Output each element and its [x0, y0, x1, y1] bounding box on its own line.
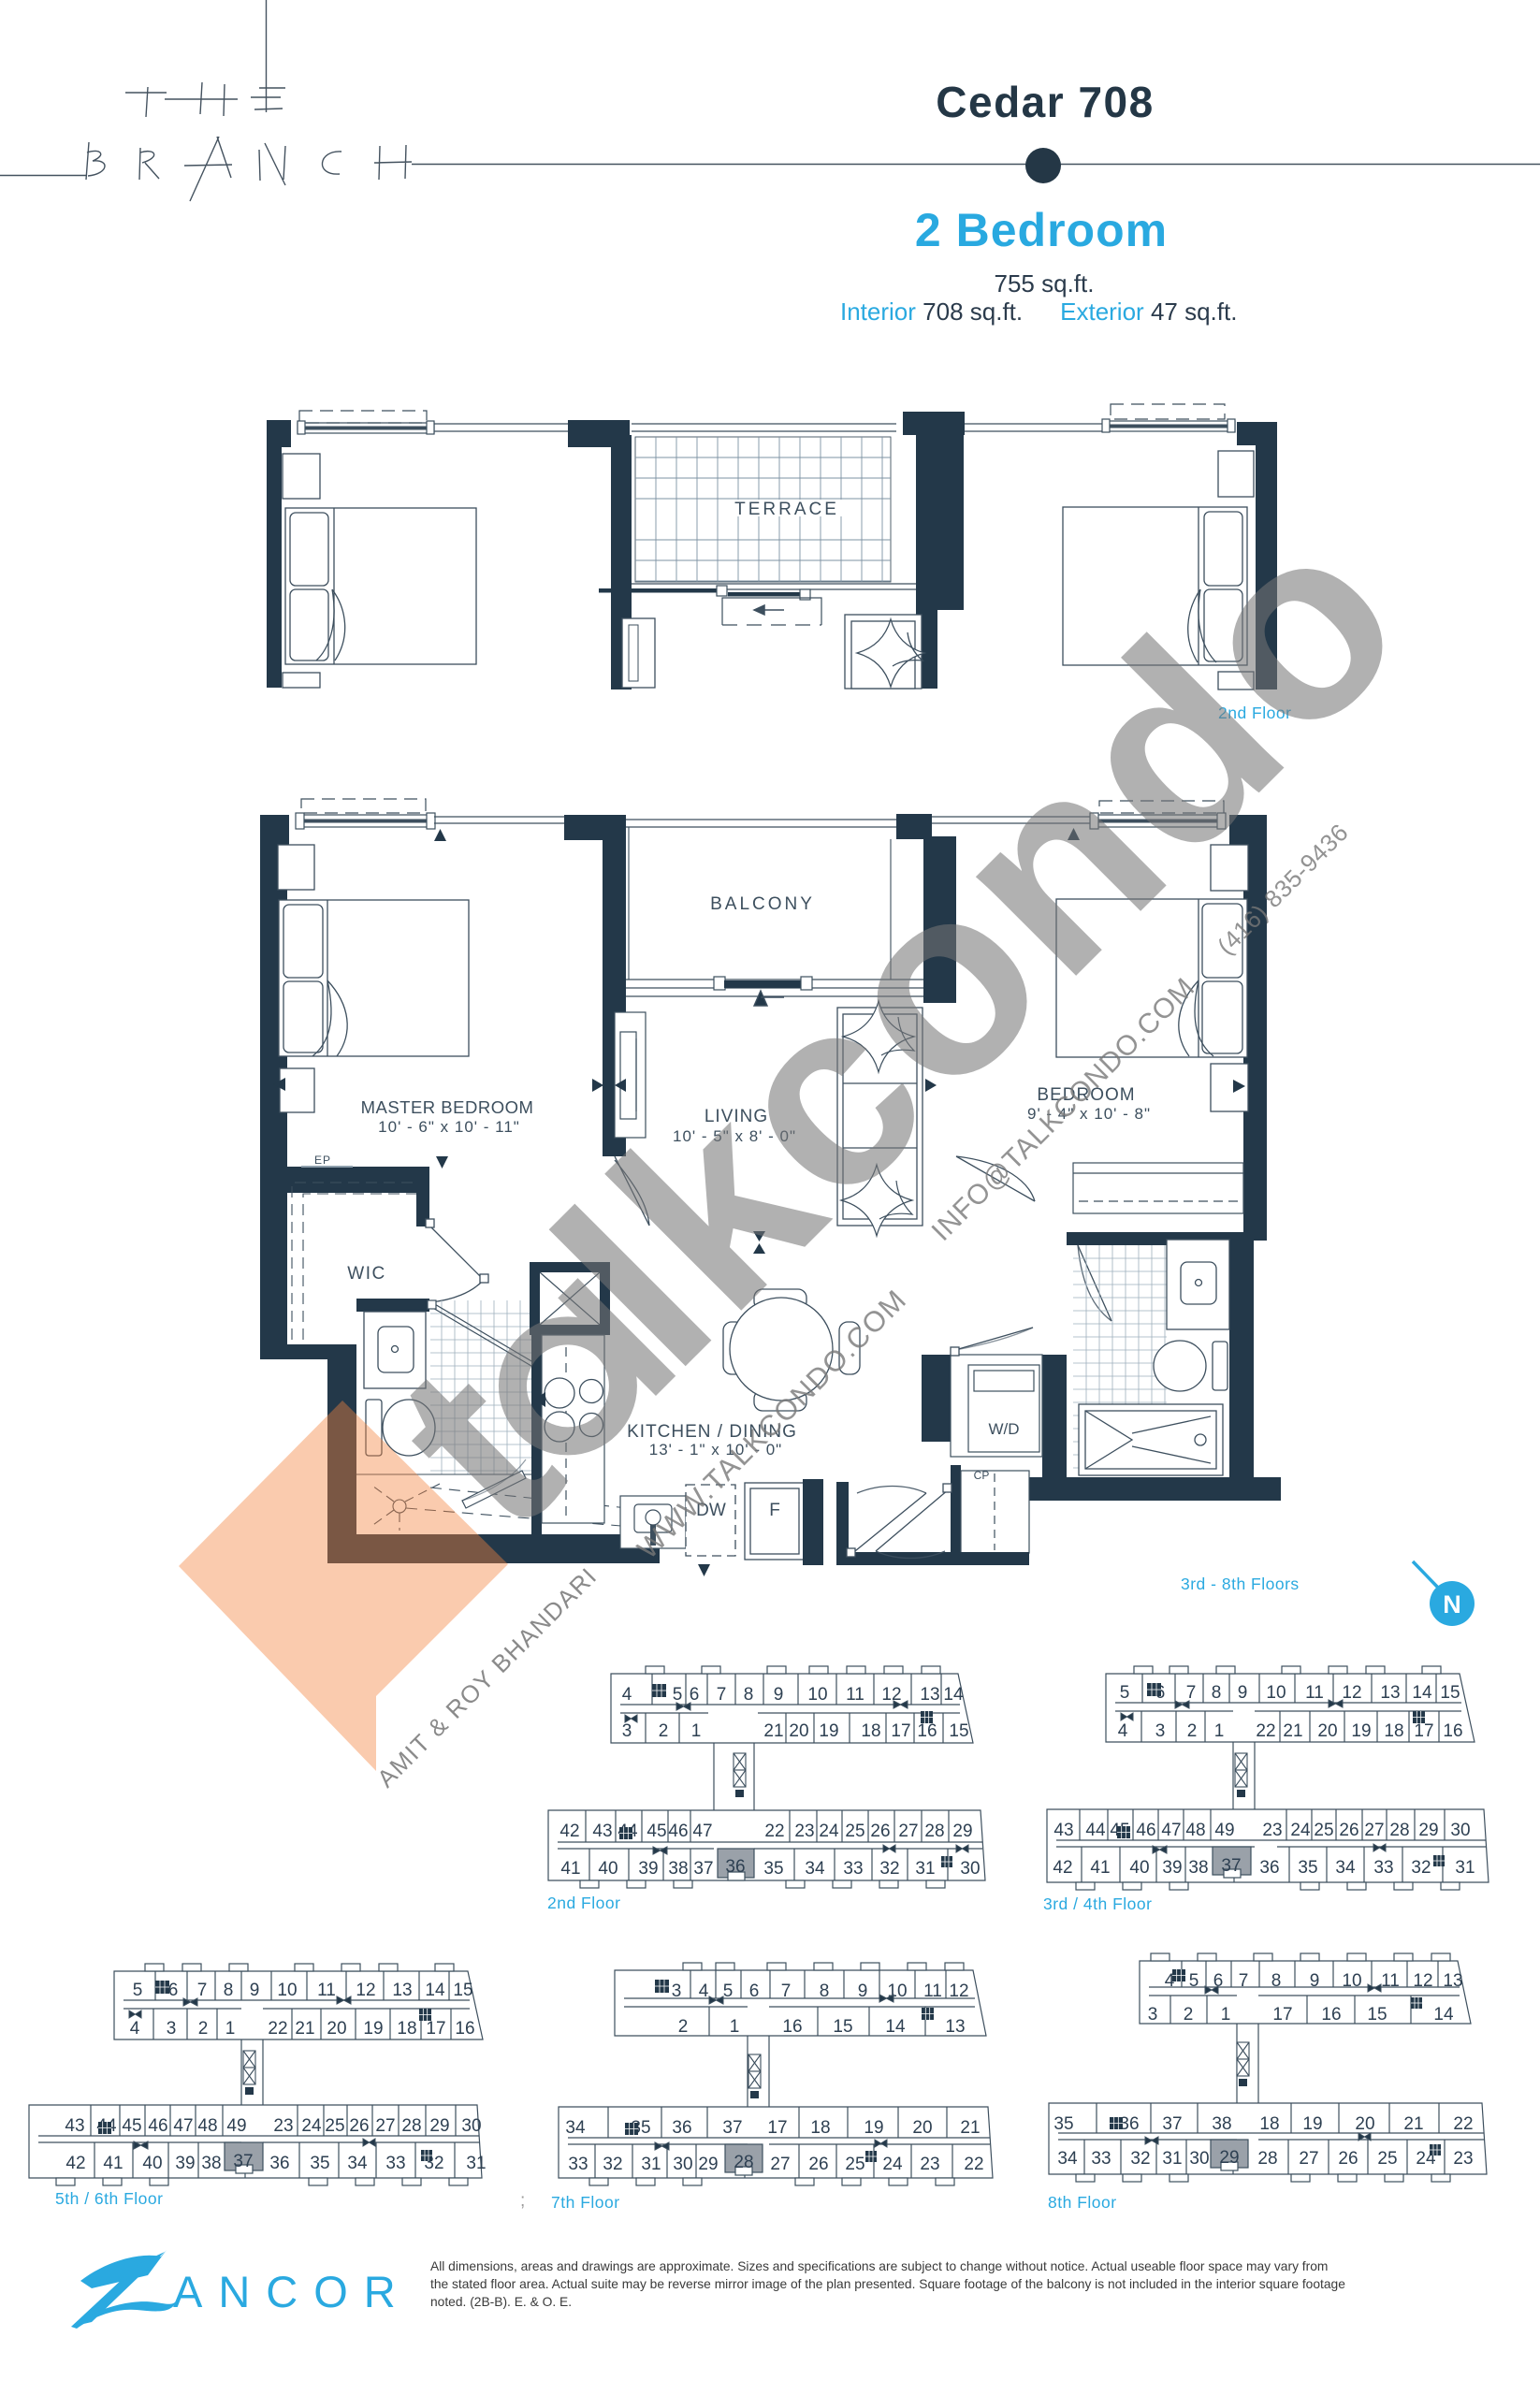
svg-text:10: 10 — [1266, 1683, 1286, 1703]
svg-text:10: 10 — [1342, 1971, 1361, 1991]
svg-text:6: 6 — [749, 1981, 760, 2001]
svg-text:31: 31 — [1162, 2149, 1182, 2169]
svg-text:19: 19 — [1351, 1721, 1371, 1741]
svg-text:17: 17 — [767, 2118, 787, 2138]
svg-text:1: 1 — [225, 2019, 236, 2039]
svg-text:7: 7 — [781, 1981, 792, 2001]
svg-text:30: 30 — [960, 1859, 980, 1879]
svg-text:25: 25 — [325, 2116, 344, 2136]
svg-text:14: 14 — [943, 1685, 964, 1705]
svg-text:MASTER BEDROOM: MASTER BEDROOM — [361, 1097, 534, 1117]
svg-text:the stated floor area. Actual: the stated floor area. Actual suite may … — [430, 2277, 1345, 2291]
svg-text:13: 13 — [1380, 1683, 1400, 1703]
svg-text:35: 35 — [763, 1859, 783, 1879]
svg-text:16: 16 — [455, 2019, 474, 2039]
svg-text:1: 1 — [1221, 2005, 1231, 2025]
svg-text:18: 18 — [810, 2118, 830, 2138]
svg-text:9: 9 — [1310, 1971, 1320, 1991]
svg-text:CP: CP — [974, 1469, 990, 1482]
svg-text:24: 24 — [301, 2116, 322, 2136]
svg-text:26: 26 — [1339, 1821, 1358, 1840]
svg-text:30: 30 — [1450, 1821, 1470, 1840]
svg-text:25: 25 — [845, 1822, 864, 1841]
svg-text:3: 3 — [1155, 1721, 1166, 1741]
svg-text:11: 11 — [1381, 1971, 1400, 1991]
svg-text:21: 21 — [763, 1721, 783, 1741]
svg-text:13: 13 — [920, 1685, 939, 1705]
svg-text:33: 33 — [843, 1859, 863, 1879]
svg-text:28: 28 — [734, 2153, 753, 2172]
svg-text:8: 8 — [1271, 1971, 1282, 1991]
svg-text:18: 18 — [861, 1721, 880, 1741]
svg-text:24: 24 — [819, 1822, 839, 1841]
svg-text:11: 11 — [846, 1685, 864, 1705]
svg-text:19: 19 — [864, 2118, 883, 2138]
svg-text:18: 18 — [1259, 2114, 1279, 2134]
svg-text:40: 40 — [598, 1859, 617, 1879]
svg-text:23: 23 — [794, 1822, 814, 1841]
svg-text:41: 41 — [1090, 1858, 1110, 1878]
svg-text:34: 34 — [347, 2154, 368, 2173]
svg-text:3: 3 — [167, 2019, 177, 2039]
svg-text:40: 40 — [1129, 1858, 1149, 1878]
svg-text:12: 12 — [1342, 1683, 1361, 1703]
svg-text:;: ; — [520, 2191, 525, 2211]
svg-text:7: 7 — [1239, 1971, 1249, 1991]
svg-text:29: 29 — [429, 2116, 449, 2136]
svg-text:41: 41 — [560, 1859, 580, 1879]
svg-text:16: 16 — [1443, 1721, 1462, 1741]
svg-text:3: 3 — [672, 1981, 682, 2001]
svg-text:42: 42 — [559, 1822, 579, 1841]
svg-text:40: 40 — [142, 2154, 162, 2173]
svg-text:22: 22 — [1453, 2114, 1473, 2134]
svg-text:30: 30 — [461, 2116, 481, 2136]
svg-text:39: 39 — [638, 1859, 658, 1879]
svg-text:8: 8 — [224, 1981, 234, 2000]
svg-text:7th Floor: 7th Floor — [551, 2193, 620, 2212]
svg-text:33: 33 — [1373, 1858, 1393, 1878]
svg-text:4: 4 — [622, 1685, 632, 1705]
svg-text:33: 33 — [1091, 2149, 1111, 2169]
svg-text:27: 27 — [898, 1822, 918, 1841]
svg-text:10' - 6" x 10' - 11": 10' - 6" x 10' - 11" — [378, 1118, 520, 1136]
svg-text:2: 2 — [1184, 2005, 1194, 2025]
svg-text:3: 3 — [1148, 2005, 1158, 2025]
svg-text:noted. (2B-B). E. & O. E.: noted. (2B-B). E. & O. E. — [430, 2295, 572, 2309]
svg-text:47: 47 — [173, 2116, 193, 2136]
svg-text:33: 33 — [568, 2155, 588, 2174]
svg-text:8: 8 — [744, 1685, 754, 1705]
svg-text:1: 1 — [730, 2017, 740, 2037]
svg-text:27: 27 — [770, 2155, 790, 2174]
svg-text:12: 12 — [881, 1685, 901, 1705]
svg-text:2nd Floor: 2nd Floor — [547, 1894, 620, 1912]
svg-text:BALCONY: BALCONY — [710, 894, 815, 914]
svg-text:13: 13 — [1443, 1971, 1462, 1991]
svg-text:24: 24 — [1290, 1821, 1311, 1840]
svg-text:26: 26 — [349, 2116, 369, 2136]
svg-text:N: N — [1443, 1590, 1461, 1618]
svg-text:W/D: W/D — [988, 1420, 1019, 1438]
svg-text:23: 23 — [1262, 1821, 1282, 1840]
svg-text:32: 32 — [1411, 1858, 1431, 1878]
svg-text:26: 26 — [808, 2155, 828, 2174]
svg-text:5th / 6th Floor: 5th / 6th Floor — [55, 2189, 163, 2208]
svg-text:43: 43 — [65, 2116, 84, 2136]
svg-text:3rd / 4th Floor: 3rd / 4th Floor — [1043, 1894, 1152, 1913]
svg-text:WIC: WIC — [347, 1264, 385, 1284]
svg-text:17: 17 — [1272, 2005, 1292, 2025]
svg-text:26: 26 — [1338, 2149, 1358, 2169]
svg-text:23: 23 — [273, 2116, 293, 2136]
svg-text:36: 36 — [1259, 1858, 1279, 1878]
svg-text:21: 21 — [1403, 2114, 1423, 2134]
svg-text:18: 18 — [1384, 1721, 1403, 1741]
svg-text:20: 20 — [1355, 2114, 1374, 2134]
svg-text:23: 23 — [920, 2155, 939, 2174]
svg-text:5: 5 — [1120, 1683, 1130, 1703]
svg-text:5: 5 — [1189, 1971, 1199, 1991]
svg-text:38: 38 — [1188, 1858, 1208, 1878]
svg-text:19: 19 — [819, 1721, 838, 1741]
svg-text:20: 20 — [789, 1721, 808, 1741]
svg-text:lkcondo: lkcondo — [502, 463, 1459, 1419]
svg-text:15: 15 — [833, 2017, 852, 2037]
svg-text:45: 45 — [647, 1822, 666, 1841]
svg-text:17: 17 — [426, 2019, 445, 2039]
svg-text:14: 14 — [425, 1981, 445, 2000]
svg-text:37: 37 — [693, 1859, 713, 1879]
svg-text:7: 7 — [1186, 1683, 1197, 1703]
svg-text:20: 20 — [1317, 1721, 1337, 1741]
svg-text:37: 37 — [233, 2152, 253, 2171]
svg-text:13: 13 — [392, 1981, 412, 2000]
svg-text:27: 27 — [1364, 1821, 1384, 1840]
svg-text:5: 5 — [133, 1981, 143, 2000]
svg-text:36: 36 — [672, 2118, 691, 2138]
svg-text:39: 39 — [1162, 1858, 1182, 1878]
svg-text:38: 38 — [668, 1859, 688, 1879]
svg-text:29: 29 — [952, 1822, 972, 1841]
svg-text:EP: EP — [314, 1154, 331, 1167]
svg-text:31: 31 — [641, 2155, 661, 2174]
svg-text:F: F — [769, 1501, 780, 1520]
svg-text:14: 14 — [885, 2017, 906, 2037]
svg-text:5: 5 — [673, 1685, 683, 1705]
svg-text:8: 8 — [1212, 1683, 1222, 1703]
svg-text:2 Bedroom: 2 Bedroom — [915, 204, 1168, 256]
svg-text:27: 27 — [375, 2116, 395, 2136]
svg-text:34: 34 — [1057, 2149, 1078, 2169]
svg-text:28: 28 — [924, 1822, 944, 1841]
svg-text:37: 37 — [722, 2118, 742, 2138]
svg-text:22: 22 — [764, 1822, 784, 1841]
svg-text:38: 38 — [201, 2154, 221, 2173]
svg-text:28: 28 — [401, 2116, 421, 2136]
svg-text:20: 20 — [327, 2019, 346, 2039]
svg-text:15: 15 — [949, 1721, 968, 1741]
svg-text:28: 28 — [1389, 1821, 1409, 1840]
svg-text:11: 11 — [1305, 1683, 1324, 1703]
svg-text:15: 15 — [453, 1981, 472, 2000]
svg-text:48: 48 — [197, 2116, 217, 2136]
svg-text:ANCOR: ANCOR — [173, 2267, 412, 2316]
svg-text:46: 46 — [148, 2116, 167, 2136]
svg-text:9: 9 — [774, 1685, 784, 1705]
svg-text:36: 36 — [725, 1857, 745, 1877]
svg-text:755 sq.ft.: 755 sq.ft. — [995, 269, 1095, 298]
svg-text:48: 48 — [1185, 1821, 1205, 1840]
svg-text:46: 46 — [668, 1822, 688, 1841]
svg-text:32: 32 — [1130, 2149, 1150, 2169]
svg-text:9: 9 — [858, 1981, 868, 2001]
svg-text:4: 4 — [1118, 1721, 1128, 1741]
svg-text:35: 35 — [1298, 1858, 1317, 1878]
svg-text:2: 2 — [678, 2017, 689, 2037]
svg-text:11: 11 — [923, 1981, 942, 2001]
svg-text:41: 41 — [103, 2154, 123, 2173]
svg-text:1: 1 — [691, 1721, 702, 1741]
svg-text:10: 10 — [807, 1685, 827, 1705]
svg-text:2: 2 — [1187, 1721, 1198, 1741]
svg-text:28: 28 — [1257, 2149, 1277, 2169]
svg-text:7: 7 — [717, 1685, 727, 1705]
svg-text:19: 19 — [1302, 2114, 1322, 2134]
svg-text:27: 27 — [1299, 2149, 1318, 2169]
svg-text:16: 16 — [1321, 2005, 1341, 2025]
svg-text:31: 31 — [1455, 1858, 1475, 1878]
svg-text:21: 21 — [295, 2019, 314, 2039]
svg-text:47: 47 — [692, 1822, 712, 1841]
svg-text:12: 12 — [949, 1981, 968, 2001]
svg-text:30: 30 — [1189, 2149, 1209, 2169]
svg-text:34: 34 — [805, 1859, 825, 1879]
svg-text:6: 6 — [690, 1685, 700, 1705]
svg-text:21: 21 — [1283, 1721, 1302, 1741]
svg-text:22: 22 — [268, 2019, 287, 2039]
svg-text:25: 25 — [845, 2155, 864, 2174]
svg-text:35: 35 — [1053, 2114, 1073, 2134]
svg-text:17: 17 — [891, 1721, 910, 1741]
svg-text:34: 34 — [565, 2118, 586, 2138]
svg-text:9: 9 — [1238, 1683, 1248, 1703]
svg-text:37: 37 — [1221, 1856, 1241, 1876]
svg-text:17: 17 — [1414, 1721, 1433, 1741]
svg-text:49: 49 — [226, 2116, 246, 2136]
svg-text:5: 5 — [723, 1981, 734, 2001]
svg-text:30: 30 — [673, 2155, 692, 2174]
svg-text:37: 37 — [1162, 2114, 1182, 2134]
svg-text:Cedar 708: Cedar 708 — [936, 78, 1154, 126]
svg-text:13: 13 — [945, 2017, 965, 2037]
svg-text:36: 36 — [269, 2154, 289, 2173]
svg-text:47: 47 — [1161, 1821, 1181, 1840]
svg-text:20: 20 — [912, 2118, 932, 2138]
svg-text:49: 49 — [1214, 1821, 1234, 1840]
svg-text:1: 1 — [1214, 1721, 1225, 1741]
svg-text:21: 21 — [960, 2118, 980, 2138]
svg-text:43: 43 — [592, 1822, 612, 1841]
svg-text:12: 12 — [1413, 1971, 1432, 1991]
svg-text:9: 9 — [250, 1981, 260, 2000]
svg-text:Interior 708 sq.ft.Exterior 47: Interior 708 sq.ft.Exterior 47 sq.ft. — [840, 298, 1237, 326]
svg-text:24: 24 — [882, 2155, 903, 2174]
svg-text:3rd - 8th Floors: 3rd - 8th Floors — [1181, 1575, 1300, 1593]
svg-text:45: 45 — [122, 2116, 141, 2136]
svg-text:34: 34 — [1335, 1858, 1356, 1878]
svg-text:32: 32 — [603, 2155, 622, 2174]
svg-text:4: 4 — [130, 2019, 140, 2039]
svg-text:4: 4 — [699, 1981, 709, 2001]
svg-text:25: 25 — [1314, 1821, 1333, 1840]
svg-text:19: 19 — [363, 2019, 383, 2039]
svg-text:29: 29 — [698, 2155, 718, 2174]
svg-text:11: 11 — [317, 1981, 336, 2000]
svg-text:14: 14 — [1412, 1683, 1432, 1703]
svg-text:43: 43 — [1053, 1821, 1073, 1840]
svg-text:29: 29 — [1219, 2148, 1239, 2168]
svg-text:42: 42 — [1053, 1858, 1072, 1878]
svg-text:23: 23 — [1453, 2149, 1473, 2169]
svg-text:TERRACE: TERRACE — [734, 500, 839, 519]
svg-text:32: 32 — [879, 1859, 899, 1879]
svg-text:3: 3 — [622, 1721, 632, 1741]
svg-text:2: 2 — [659, 1721, 669, 1741]
svg-text:39: 39 — [175, 2154, 195, 2173]
svg-text:46: 46 — [1136, 1821, 1155, 1840]
svg-text:42: 42 — [65, 2154, 85, 2173]
svg-text:26: 26 — [870, 1822, 890, 1841]
svg-text:35: 35 — [310, 2154, 329, 2173]
svg-text:15: 15 — [1440, 1683, 1460, 1703]
svg-text:25: 25 — [1377, 2149, 1397, 2169]
svg-text:2: 2 — [198, 2019, 209, 2039]
svg-text:14: 14 — [1433, 2005, 1454, 2025]
svg-text:44: 44 — [1085, 1821, 1106, 1840]
svg-text:8: 8 — [820, 1981, 830, 2001]
svg-text:22: 22 — [964, 2155, 983, 2174]
svg-text:15: 15 — [1367, 2005, 1387, 2025]
svg-text:6: 6 — [168, 1981, 179, 2000]
svg-text:16: 16 — [917, 1721, 937, 1741]
svg-text:7: 7 — [197, 1981, 208, 2000]
svg-text:8th Floor: 8th Floor — [1048, 2193, 1117, 2212]
svg-text:18: 18 — [397, 2019, 416, 2039]
svg-text:16: 16 — [782, 2017, 802, 2037]
svg-text:33: 33 — [385, 2154, 405, 2173]
svg-text:10: 10 — [277, 1981, 297, 2000]
svg-text:31: 31 — [915, 1859, 935, 1879]
svg-text:All dimensions, areas and draw: All dimensions, areas and drawings are a… — [430, 2259, 1328, 2273]
svg-text:31: 31 — [466, 2154, 486, 2173]
svg-text:29: 29 — [1418, 1821, 1438, 1840]
svg-text:12: 12 — [356, 1981, 375, 2000]
svg-text:38: 38 — [1212, 2114, 1231, 2134]
svg-text:22: 22 — [1256, 1721, 1275, 1741]
